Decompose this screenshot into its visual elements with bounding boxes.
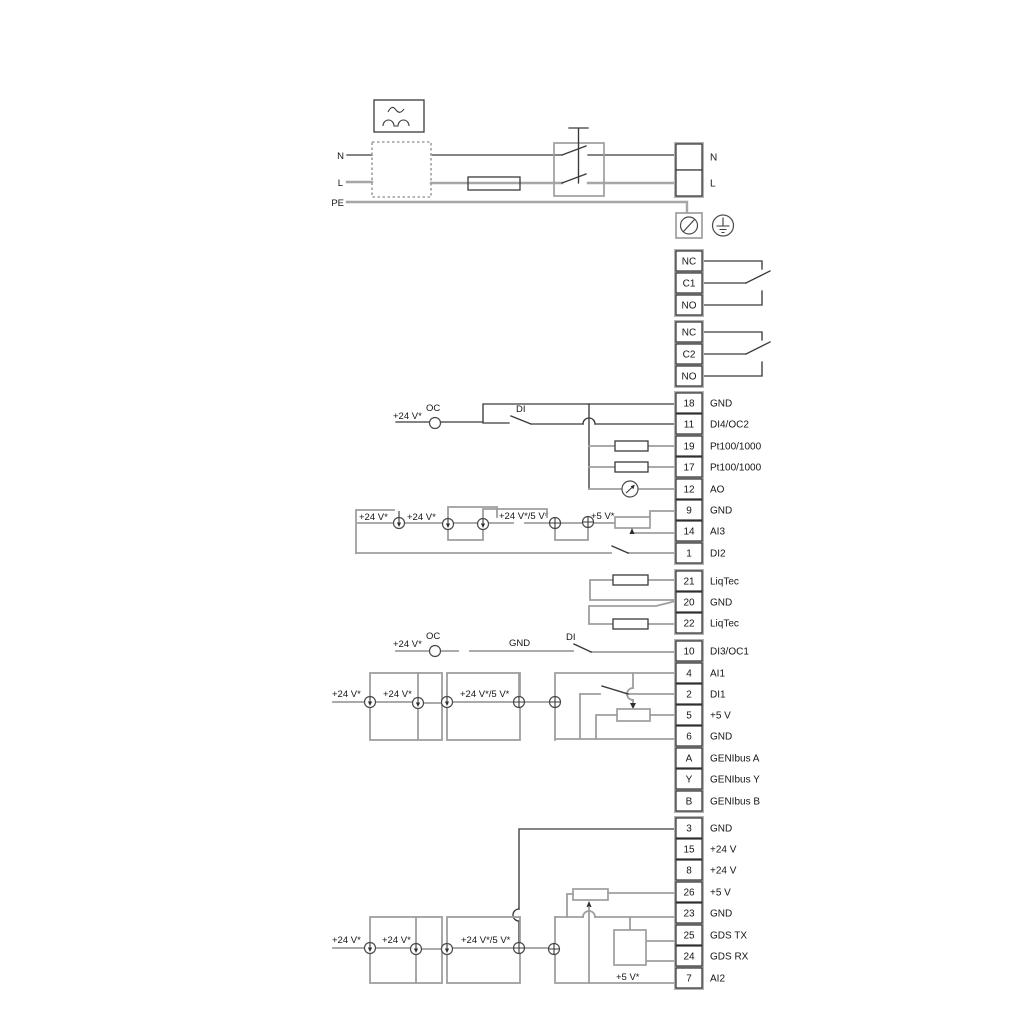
terminal-blocks: NLNCC1NONCC2NO18GND11DI4/OC219Pt100/1000… [674, 142, 762, 990]
di4-switch-arm [511, 416, 531, 424]
ai1-wiper-arrow [630, 703, 636, 709]
terminal-number: 10 [683, 647, 695, 658]
di4-oc2-section: +24 V* OC DI [393, 403, 676, 497]
supply-circle-5v [550, 518, 561, 529]
switch-arm-l [562, 174, 586, 183]
terminal-number: 5 [686, 711, 692, 722]
terminal-number: NO [682, 301, 697, 312]
terminal-number: 21 [683, 577, 695, 588]
pt100-resistor-1 [615, 441, 648, 451]
diagram-canvas: N L PE [0, 0, 1024, 1024]
liqtec-sensor-1 [613, 575, 648, 585]
pe-wire [347, 202, 687, 213]
terminal-number: NO [682, 372, 697, 383]
label-oc: OC [426, 631, 440, 642]
terminal-label: N [710, 153, 717, 164]
wiring-diagram: N L PE [0, 0, 1024, 1024]
earth-icon [713, 215, 734, 236]
terminal-number: 14 [683, 527, 695, 538]
label-24v: +24 V* [359, 512, 388, 523]
label-5v: +5 V* [616, 972, 640, 983]
supply-circle-24v [413, 698, 424, 709]
ai1-options-section: +24 V* +24 V* +24 V*/5 V* [332, 673, 676, 740]
terminal-label: L [710, 179, 716, 190]
l-wire [347, 182, 676, 183]
liqtec-sensor-2 [613, 619, 648, 629]
terminal-group-relay-2: NCC2NO [674, 320, 704, 388]
potentiometer [617, 709, 650, 721]
terminal-number: 18 [683, 399, 695, 410]
terminal-group-relay-1: NCC1NO [674, 249, 704, 317]
label-pe: PE [331, 198, 344, 209]
terminal-number: C2 [683, 350, 696, 361]
label-5v: +5 V* [591, 511, 615, 522]
label-24v: +24 V* [393, 639, 422, 650]
converter-box [374, 100, 424, 132]
switch-arm-n [562, 146, 586, 155]
supply-circle-24v [442, 697, 453, 708]
supply-circle-24v [443, 519, 454, 530]
supply-circle-5v [514, 697, 525, 708]
terminal-number: Y [686, 775, 693, 786]
supply-circle-5v [514, 943, 525, 954]
label-24v: +24 V* [332, 935, 361, 946]
terminal-number: 9 [686, 506, 692, 517]
label-di: DI [516, 404, 526, 415]
oc-circle [430, 418, 441, 429]
terminal-label: GND [710, 909, 732, 920]
terminal-number: 22 [683, 619, 695, 630]
label-l: L [338, 178, 343, 189]
terminal-number: 8 [686, 866, 692, 877]
terminal-label: GND [710, 598, 732, 609]
option-group-1 [370, 673, 442, 740]
terminal-number: 7 [686, 974, 692, 985]
option-group-2 [447, 917, 520, 983]
potentiometer [573, 889, 608, 900]
relay-2-contacts [702, 332, 770, 376]
terminal-label: DI2 [710, 549, 726, 560]
terminal-label: GND [710, 824, 732, 835]
rectified-symbol [383, 120, 409, 126]
pot-wiper-arrow [630, 528, 635, 534]
terminal-number: 4 [686, 669, 692, 680]
ai2-gds-section: +24 V* +24 V* +24 V*/5 V* +5 V* [332, 829, 676, 983]
label-n: N [337, 151, 344, 162]
terminal-label: DI4/OC2 [710, 420, 749, 431]
liqtec-section [589, 575, 676, 629]
label-24v-5v: +24 V*/5 V* [460, 689, 510, 700]
terminal-number: 23 [683, 909, 695, 920]
terminal-label: DI1 [710, 690, 726, 701]
terminal-group-io-1: 18GND11DI4/OC219Pt100/100017Pt100/100012… [674, 391, 762, 565]
terminal-group-mains: NL [674, 142, 717, 198]
label-di: DI [566, 632, 576, 643]
supply-circle-24v [478, 519, 489, 530]
label-24v: +24 V* [393, 411, 422, 422]
terminal-label: GND [710, 506, 732, 517]
terminal-label: +5 V [710, 888, 731, 899]
terminal-number: 24 [683, 952, 695, 963]
terminal-number: 3 [686, 824, 692, 835]
terminal-cell-L [676, 170, 702, 196]
gds-sensor-box [614, 930, 646, 965]
terminal-label: AO [710, 485, 725, 496]
terminal-cell-N [676, 144, 702, 170]
terminal-label: LiqTec [710, 577, 739, 588]
terminal-group-io-3: 3GND15+24 V8+24 V26+5 V23GND25GDS TX24GD… [674, 816, 749, 990]
terminal-label: LiqTec [710, 619, 739, 630]
di2-switch-arm [612, 546, 628, 553]
terminal-number: 26 [683, 888, 695, 899]
supply-circle-24v [365, 697, 376, 708]
supply-circle-24v [442, 944, 453, 955]
terminal-label: Pt100/1000 [710, 442, 762, 453]
supply-circle-24v [394, 511, 405, 529]
terminal-number: 6 [686, 732, 692, 743]
relay-1-arm [746, 271, 770, 283]
terminal-label: +24 V [710, 845, 737, 856]
terminal-number: 15 [683, 845, 695, 856]
label-24v-5v: +24 V*/5 V* [461, 935, 511, 946]
supply-circle-24v [365, 943, 376, 954]
terminal-group-io-2: 10DI3/OC14AI12DI15+5 V6GNDAGENIbus AYGEN… [674, 639, 760, 813]
terminal-number: 11 [684, 420, 695, 431]
label-24v: +24 V* [383, 689, 412, 700]
terminal-number: 20 [683, 598, 695, 609]
terminal-label: GENIbus Y [710, 775, 760, 786]
terminal-label: GENIbus B [710, 797, 760, 808]
terminal-label: AI2 [710, 974, 725, 985]
terminal-number: A [686, 754, 693, 765]
terminal-label: GDS TX [710, 931, 747, 942]
supply-circle-5v [549, 944, 560, 955]
terminal-label: GND [710, 732, 732, 743]
label-24v: +24 V* [407, 512, 436, 523]
terminal-label: AI3 [710, 527, 725, 538]
label-oc: OC [426, 403, 440, 414]
terminal-number: B [686, 797, 693, 808]
terminal-group-liqtec: 21LiqTec20GND22LiqTec [674, 569, 739, 635]
terminal-label: Pt100/1000 [710, 463, 762, 474]
option-group-1 [370, 917, 442, 983]
oc-circle [430, 646, 441, 657]
dashed-box [372, 142, 431, 197]
terminal-number: 25 [683, 931, 695, 942]
terminal-number: 17 [683, 463, 695, 474]
relay-1-contacts [702, 261, 770, 305]
supply-circle-5v [550, 697, 561, 708]
terminal-label: GENIbus A [710, 754, 760, 765]
power-section: N L PE [331, 100, 733, 238]
di3-switch-arm [574, 644, 591, 652]
wire-hop [513, 909, 519, 921]
terminal-label: +5 V [710, 711, 731, 722]
terminal-number: NC [682, 257, 696, 268]
terminal-label: GDS RX [710, 952, 749, 963]
di1-switch-arm [602, 686, 628, 694]
supply-circle-24v [411, 944, 422, 955]
terminal-label: +24 V [710, 866, 737, 877]
relay-2-arm [746, 342, 770, 354]
supply-circle-5v [583, 517, 594, 528]
ai3-options-section: +24 V* +24 V* +24 V*/5 V* +5 V* [356, 507, 676, 553]
terminal-label: GND [710, 399, 732, 410]
terminal-number: C1 [683, 279, 696, 290]
di3-oc1-section: +24 V* OC GND DI [393, 631, 676, 657]
potentiometer [615, 517, 650, 528]
label-24v: +24 V* [332, 689, 361, 700]
label-24v-5v: +24 V*/5 V* [499, 511, 549, 522]
terminal-number: 1 [686, 549, 692, 560]
option-group-2 [447, 673, 520, 740]
terminal-number: NC [682, 328, 696, 339]
terminal-number: 2 [686, 690, 692, 701]
terminal-label: DI3/OC1 [710, 647, 749, 658]
terminal-number: 19 [683, 442, 695, 453]
pt100-resistor-2 [615, 462, 648, 472]
terminal-number: 12 [683, 485, 695, 496]
sine-symbol [388, 107, 404, 112]
label-gnd: GND [509, 638, 530, 649]
terminal-label: AI1 [710, 669, 725, 680]
label-24v: +24 V* [382, 935, 411, 946]
